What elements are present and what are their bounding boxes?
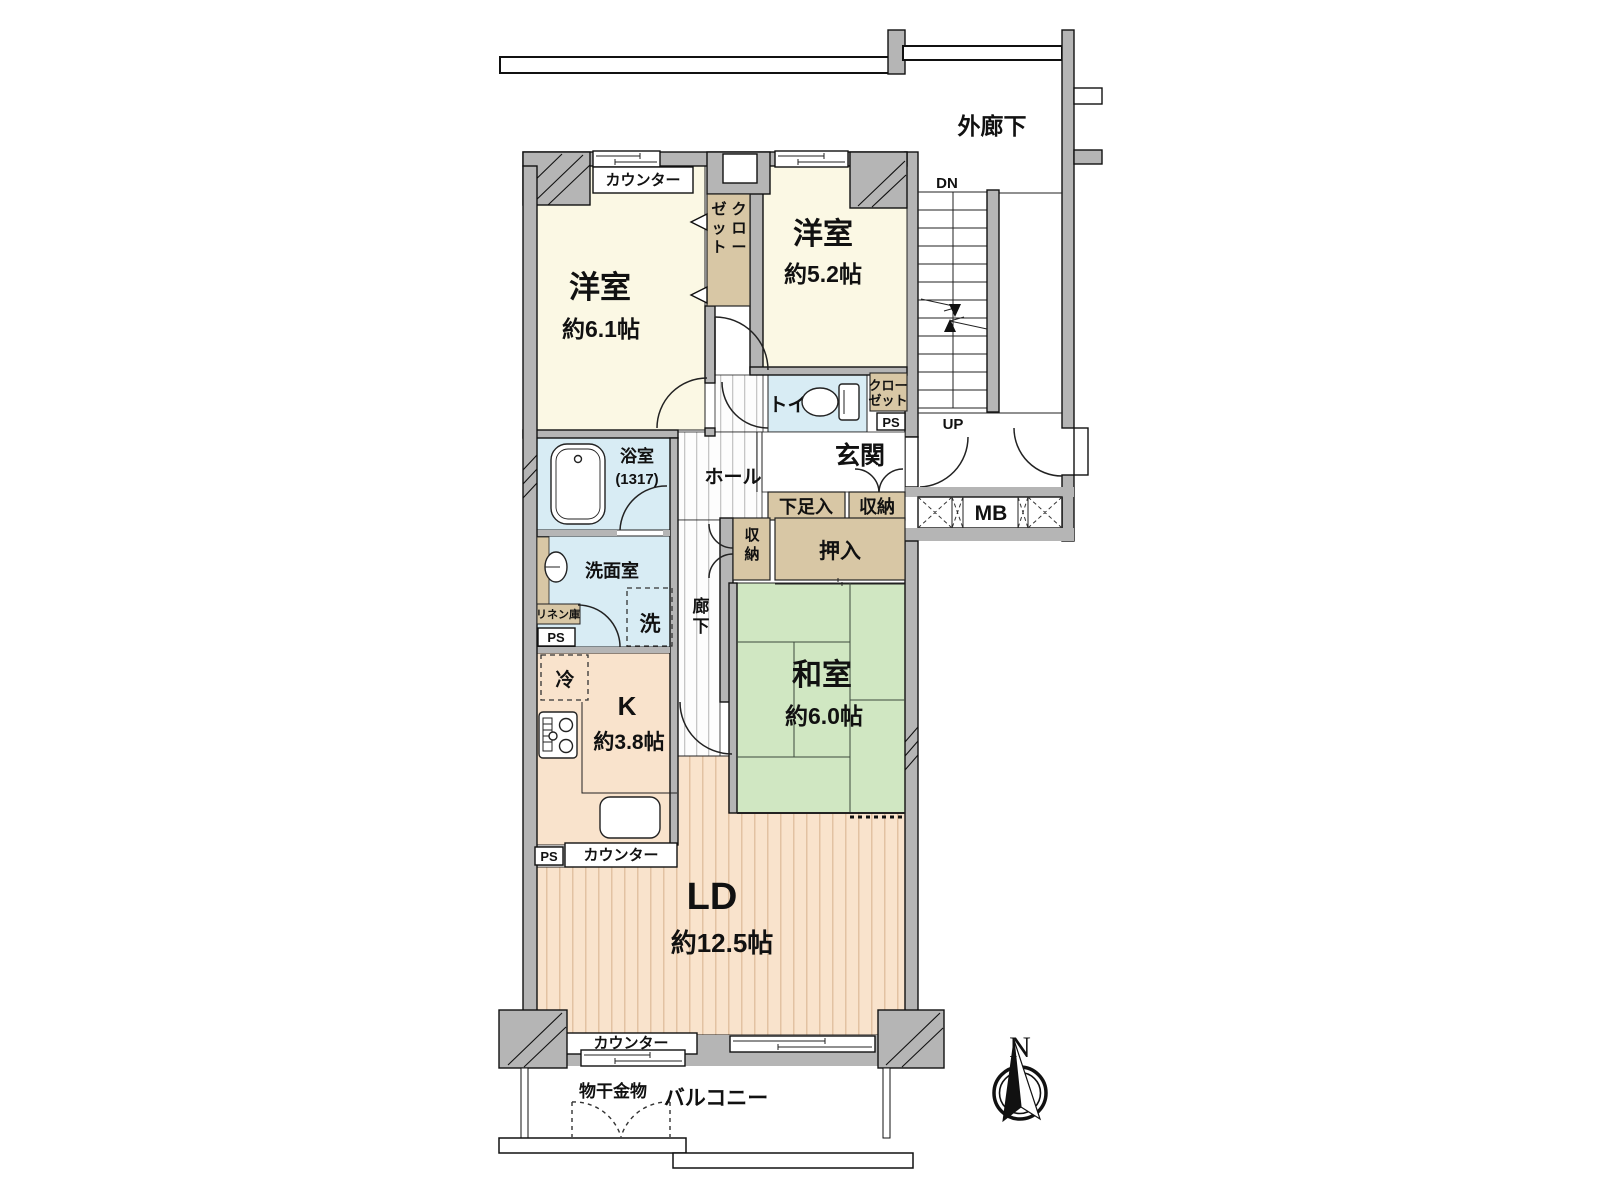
closet1-label-col2: ゼット [711,200,726,256]
entrance-label: 玄関 [835,441,885,470]
living-size-label: 約12.5帖 [671,928,774,958]
ps-washroom-label: PS [547,630,565,645]
laundry-hanger-icon [572,1102,670,1137]
floor-plan-page: 外廊下 DN UP [0,0,1600,1200]
kitchen-size-label: 約3.8帖 [593,730,664,754]
bath-faucet [575,456,582,463]
kitchen-sink [600,797,660,838]
shoe-box-label: 下足入 [779,497,833,517]
laundry-hanger-label: 物干金物 [579,1081,647,1101]
meter-box: MB [905,487,1074,541]
fridge-label: 冷 [555,668,574,691]
western-room-2-size: 約5.2帖 [784,261,862,287]
stair-down-label: DN [936,175,958,192]
closet2-label-line2: ゼット [868,393,907,408]
washer-label: 洗 [640,613,661,636]
western-room-1-name: 洋室 [569,270,631,305]
meter-box-label: MB [975,502,1008,525]
japanese-room-floor [737,583,905,813]
compass: N [994,1031,1046,1121]
balcony: 物干金物 バルコニー [499,1068,913,1168]
stair-up-label: UP [943,416,964,433]
toilet-tank [839,384,859,420]
ps-toilet-label: PS [882,415,900,430]
toilet-bowl [802,388,838,416]
unit-entrance-door [920,437,968,487]
closet1-label-col1: クロー [731,201,746,256]
bath-label: 浴室 [620,446,654,466]
corridor-floor [678,520,720,756]
ps-kitchen-label: PS [540,849,558,864]
entrance-landing [905,428,1088,487]
bath-size-label: (1317) [615,471,658,488]
stair-break-symbol [921,299,987,332]
compass-north-label: N [1009,1031,1031,1064]
western-room-1-size: 約6.1帖 [562,316,640,342]
western-room-2-name: 洋室 [793,217,853,251]
counter-kitchen-label: カウンター [583,847,658,864]
storage-row: 収納 押入 [709,518,905,586]
japanese-room-size: 約6.0帖 [785,703,863,729]
neighbor-entrance-door [1014,428,1062,476]
outer-corridor-label: 外廊下 [958,113,1027,139]
closet2-label-line1: クロー [868,378,907,393]
hall-label: ホール [704,467,761,488]
entrance-storage-label: 収納 [859,496,895,517]
balcony-label: バルコニー [664,1087,769,1110]
floor-plan-drawing: 外廊下 DN UP [0,0,1600,1200]
oshiire-label: 押入 [819,539,861,563]
living-label: LD [687,876,738,918]
washroom-label: 洗面室 [585,560,639,581]
kitchen-label: K [618,691,637,721]
staircase: DN UP [905,152,1062,437]
counter-top-label: カウンター [605,172,680,189]
linen-label: リネン庫 [536,607,580,621]
japanese-room-name: 和室 [792,658,852,692]
